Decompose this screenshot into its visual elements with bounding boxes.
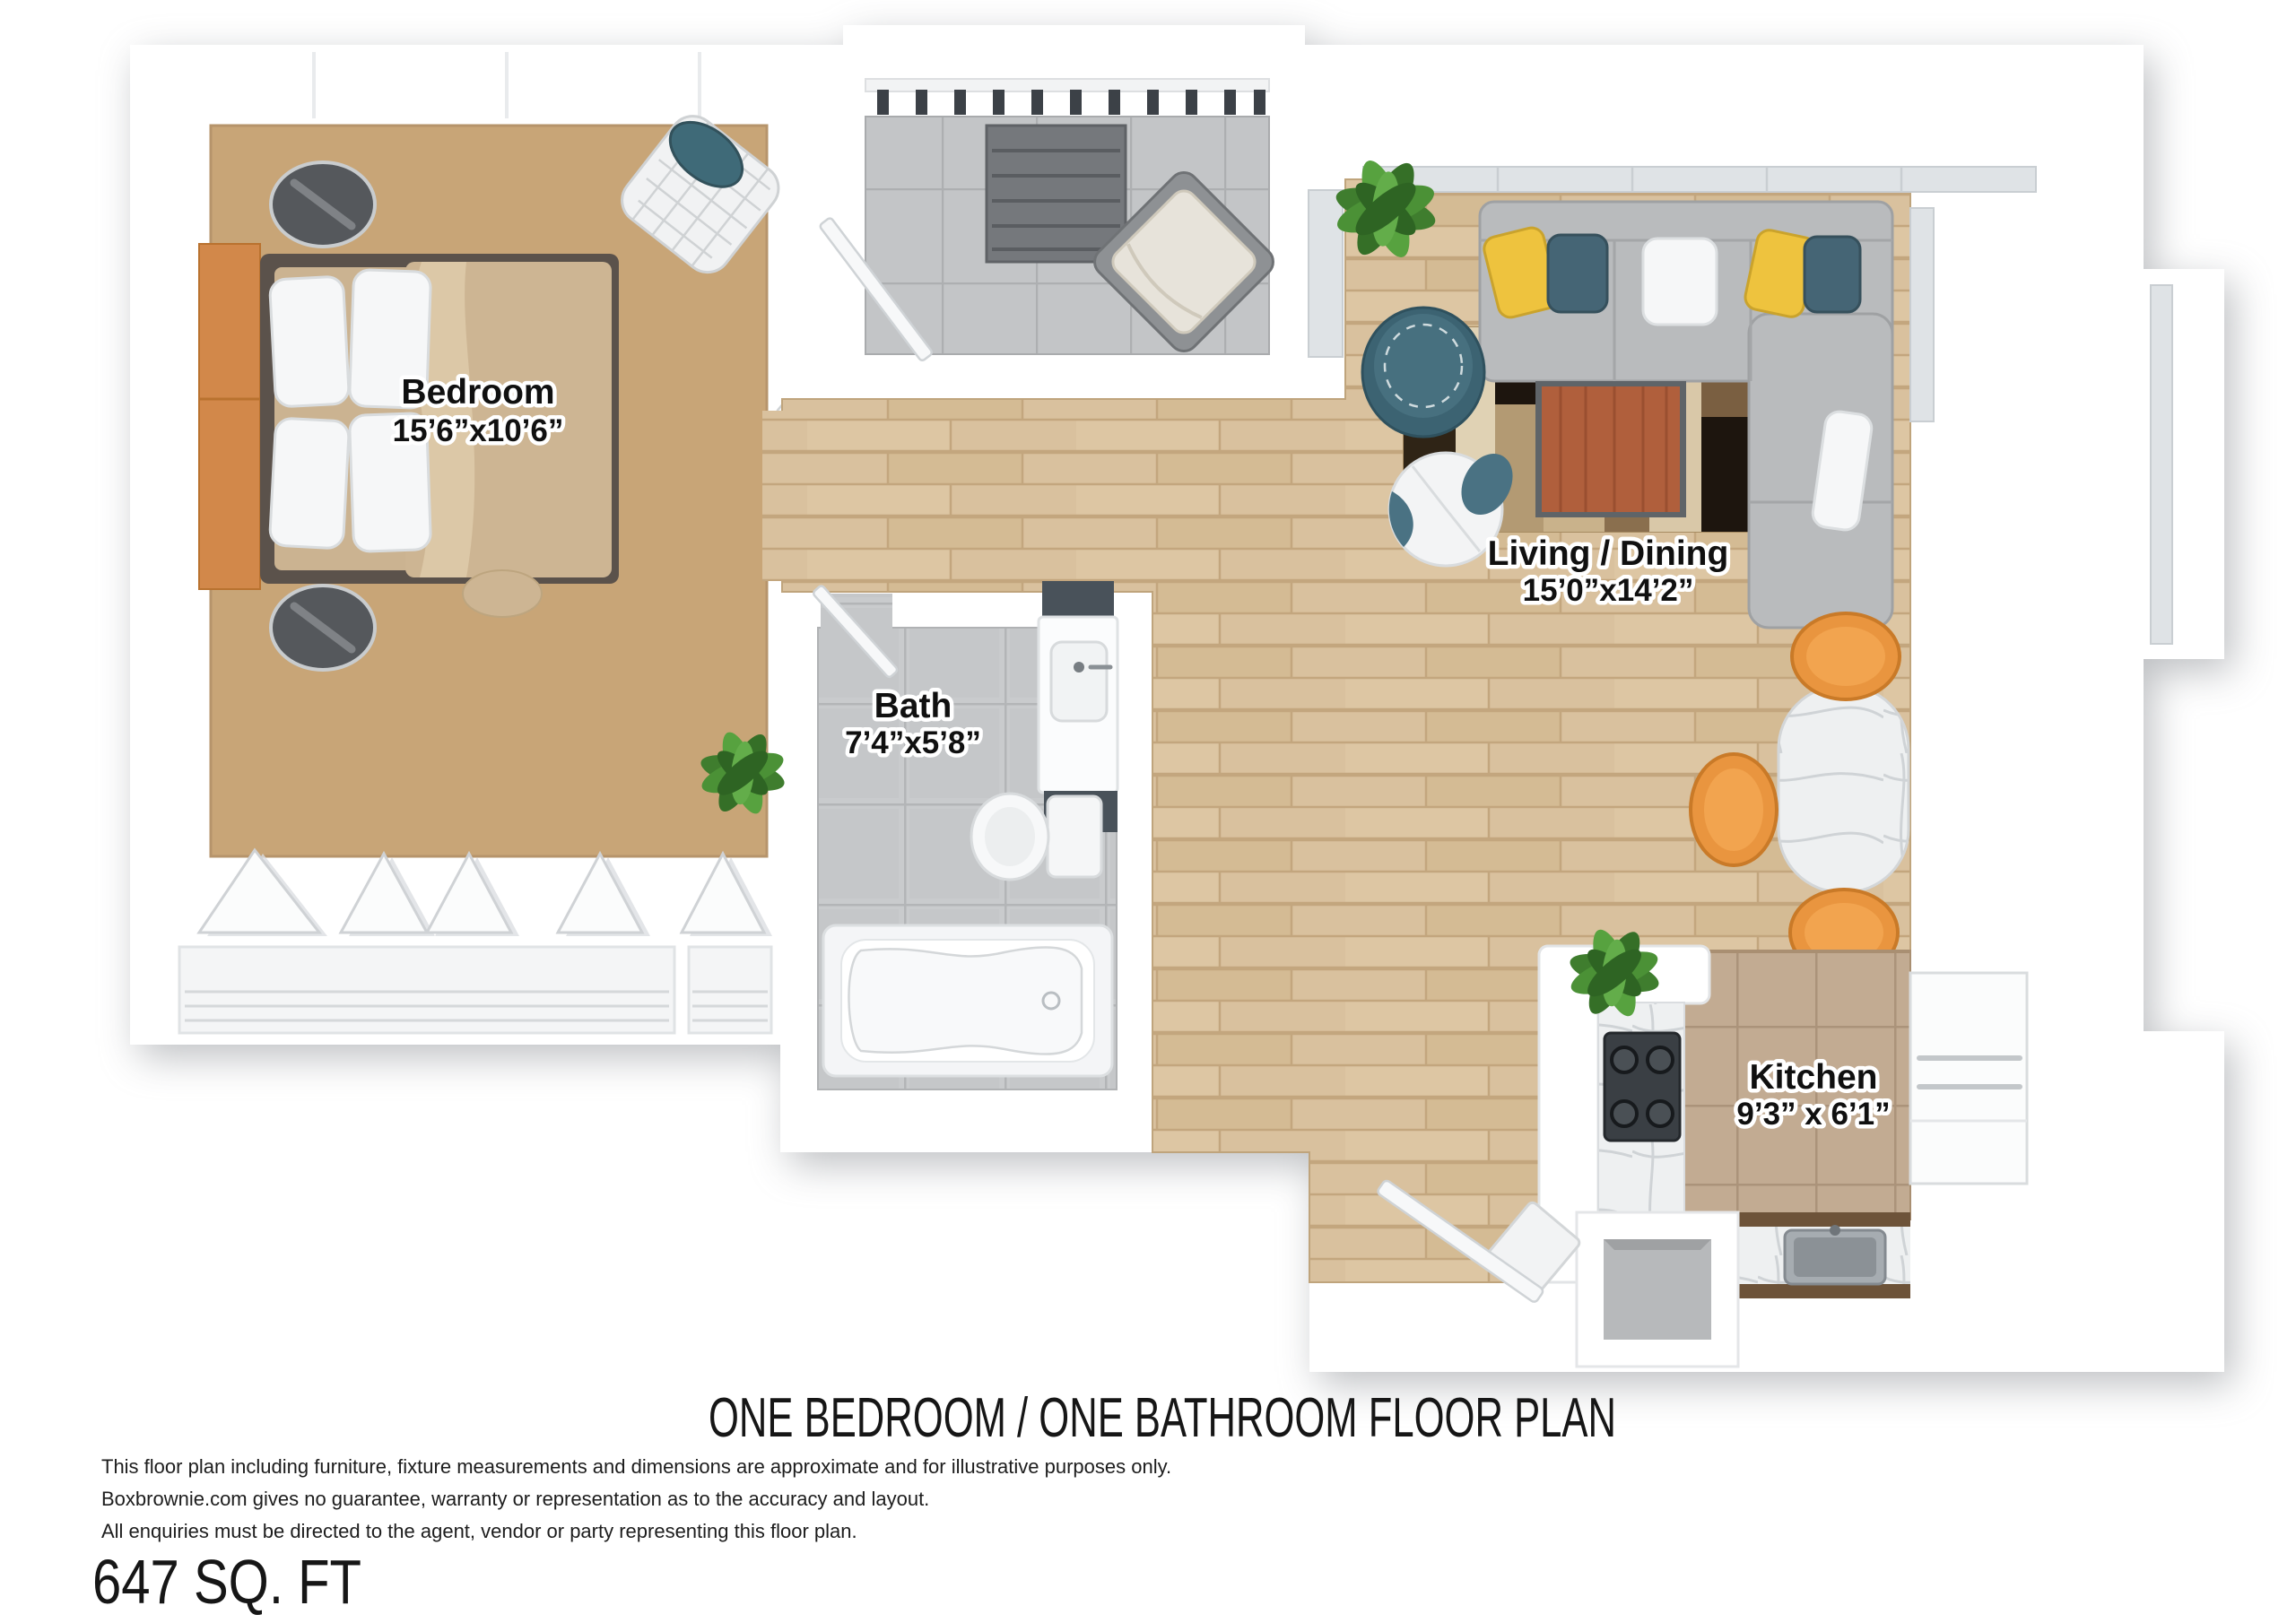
floor-plan-figure: Bedroom 15’6”x10’6” [0,0,2296,1623]
teal-pillow [1805,237,1860,312]
window [1363,167,2036,192]
bedside-table [271,586,375,670]
balcony-table [987,126,1126,262]
bedroom-label: Bedroom [401,373,554,412]
bathtub [823,925,1112,1076]
blanket-tail [463,570,542,617]
bathroom: Bath 7’4”x5’8” [813,581,1118,1089]
stove [1605,1033,1680,1141]
kitchen-dimensions: 9’3” x 6’1” [1736,1097,1890,1132]
bedroom-dimensions: 15’6”x10’6” [393,413,564,448]
bedside-table [271,162,375,247]
bath-dimensions: 7’4”x5’8” [845,725,981,760]
headboard [199,244,260,589]
page-title: ONE BEDROOM / ONE BATHROOM FLOOR PLAN [709,1387,1616,1449]
white-pillow [1643,239,1717,325]
dining-table [1779,686,1909,892]
area-label: 647 SQ. FT [92,1547,361,1617]
disclaimer-line-1: This floor plan including furniture, fix… [101,1455,1171,1478]
disclaimer-line-2: Boxbrownie.com gives no guarantee, warra… [101,1488,929,1510]
toilet [971,794,1101,880]
bath-vanity-sink [1039,581,1118,832]
window [1910,208,1934,421]
ottoman [1362,308,1484,437]
window [2151,285,2172,644]
coffee-table [1535,381,1686,517]
floor-plan-page: Bedroom 15’6”x10’6” [0,0,2296,1623]
doorway-threshold [762,411,800,581]
kitchen-sink [1785,1225,1885,1284]
teal-pillow [1548,235,1607,312]
living-dining-label: Living / Dining [1488,534,1729,573]
bath-label: Bath [874,687,952,725]
kitchen-label: Kitchen [1749,1058,1877,1097]
living-dining-dimensions: 15’0”x14’2” [1523,573,1694,608]
disclaimer-line-3: All enquiries must be directed to the ag… [101,1520,857,1542]
fridge [1910,973,2027,1184]
window [1309,190,1343,357]
balcony [819,79,1279,361]
pantry-nook [1577,1212,1738,1367]
